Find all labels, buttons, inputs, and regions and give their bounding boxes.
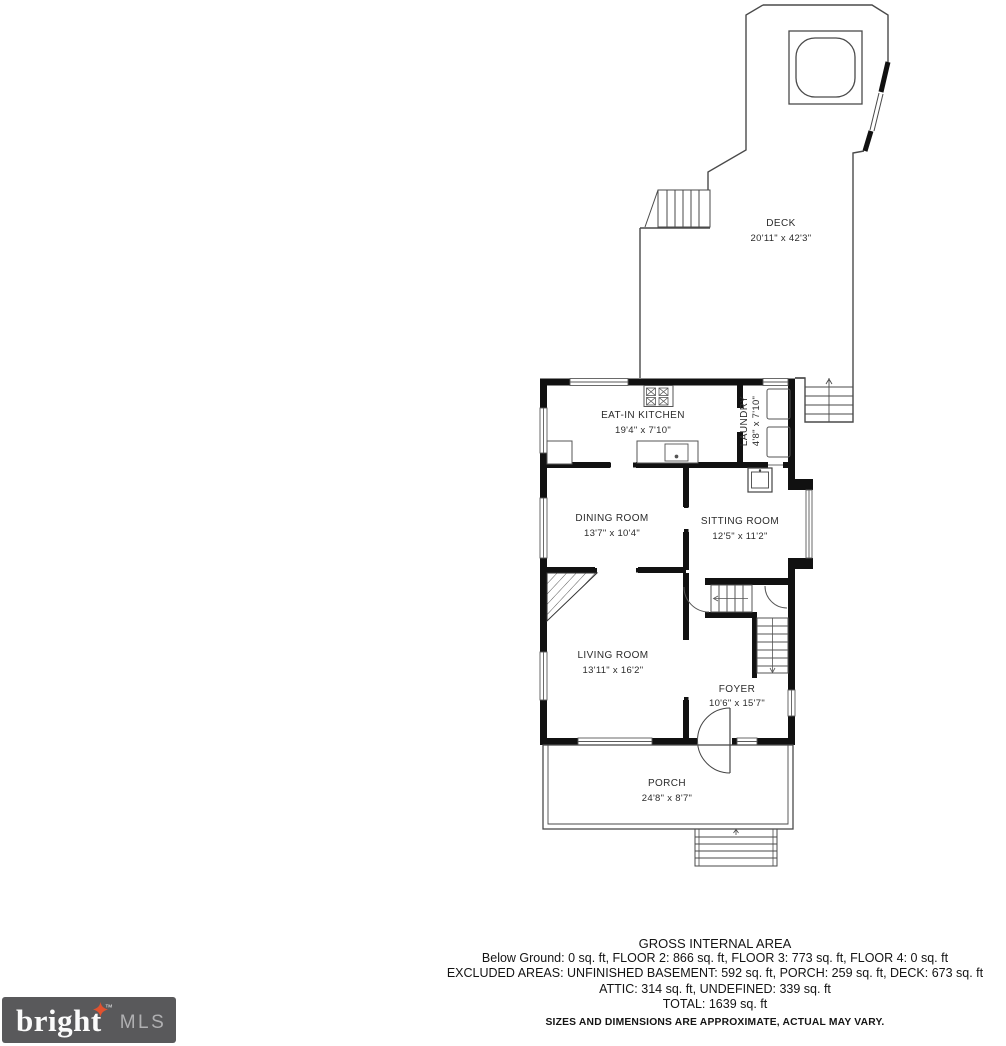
summary-title: GROSS INTERNAL AREA bbox=[420, 936, 1006, 951]
stair-hatch-triangle bbox=[547, 573, 597, 621]
logo-brand-text: bright bbox=[16, 1005, 102, 1036]
summary-line-excluded: EXCLUDED AREAS: UNFINISHED BASEMENT: 592… bbox=[420, 966, 1006, 981]
porch-label: PORCH bbox=[648, 778, 686, 789]
summary-line-floors: Below Ground: 0 sq. ft, FLOOR 2: 866 sq.… bbox=[420, 951, 1006, 966]
deck-label: DECK bbox=[766, 218, 795, 229]
summary-disclaimer: SIZES AND DIMENSIONS ARE APPROXIMATE, AC… bbox=[420, 1015, 1006, 1030]
deck-upper-stairs bbox=[645, 190, 710, 227]
foyer-dims: 10'6" x 15'7" bbox=[709, 698, 765, 709]
front-door bbox=[698, 708, 731, 773]
summary-line-attic: ATTIC: 314 sq. ft, UNDEFINED: 339 sq. ft bbox=[420, 982, 1006, 997]
washer-icon bbox=[767, 389, 790, 419]
windows bbox=[540, 379, 812, 746]
dining-label: DINING ROOM bbox=[575, 513, 648, 524]
deck-dims: 20'11" x 42'3" bbox=[751, 233, 812, 244]
sitting-label: SITTING ROOM bbox=[701, 516, 779, 527]
deck-angled-window bbox=[865, 62, 888, 151]
hot-tub-icon bbox=[789, 31, 862, 104]
living-dims: 13'11" x 16'2" bbox=[583, 665, 644, 676]
bright-mls-logo: bright ™ MLS bbox=[2, 997, 176, 1043]
deck-outline bbox=[640, 5, 888, 422]
summary-line-total: TOTAL: 1639 sq. ft bbox=[420, 997, 1006, 1012]
deck-side-stairs bbox=[805, 378, 853, 422]
kitchen-label: EAT-IN KITCHEN bbox=[601, 410, 685, 421]
laundry-label: LAUNDRY bbox=[739, 396, 750, 446]
living-label: LIVING ROOM bbox=[577, 650, 648, 661]
stove-icon bbox=[644, 386, 673, 407]
logo-mls-text: MLS bbox=[120, 1012, 167, 1034]
stair-door-arc bbox=[765, 586, 787, 608]
foyer-label: FOYER bbox=[719, 684, 755, 695]
trademark-symbol: ™ bbox=[105, 1003, 113, 1012]
dryer-icon bbox=[767, 427, 790, 457]
floor-plan-drawing: DECK 20'11" x 42'3" EAT-IN KITCHEN 19'4"… bbox=[0, 0, 1006, 1046]
area-summary: GROSS INTERNAL AREA Below Ground: 0 sq. … bbox=[420, 936, 1006, 1030]
sitting-sink-icon bbox=[748, 468, 772, 492]
kitchen-dims: 19'4" x 7'10" bbox=[615, 425, 671, 436]
exterior-walls bbox=[540, 379, 813, 746]
sitting-dims: 12'5" x 11'2" bbox=[712, 531, 767, 542]
porch-dims: 24'8" x 8'7" bbox=[642, 793, 692, 804]
laundry-dims: 4'8" x 7'10" bbox=[751, 396, 762, 446]
porch-steps bbox=[695, 829, 777, 866]
dining-dims: 13'7" x 10'4" bbox=[584, 528, 640, 539]
foyer-stairs bbox=[711, 585, 788, 673]
kitchen-counter bbox=[547, 441, 698, 464]
floor-plan-page: DECK 20'11" x 42'3" EAT-IN KITCHEN 19'4"… bbox=[0, 0, 1006, 1046]
